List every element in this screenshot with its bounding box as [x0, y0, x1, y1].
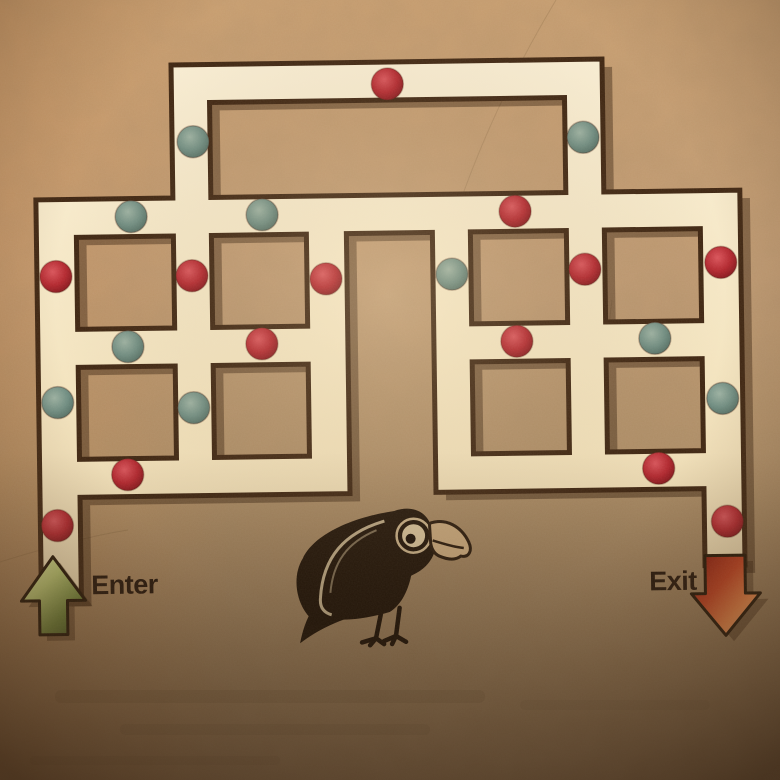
vignette: [0, 0, 780, 780]
maze-puzzle-photo: Enter Exit: [0, 0, 780, 780]
maze-canvas: Enter Exit: [0, 0, 780, 780]
